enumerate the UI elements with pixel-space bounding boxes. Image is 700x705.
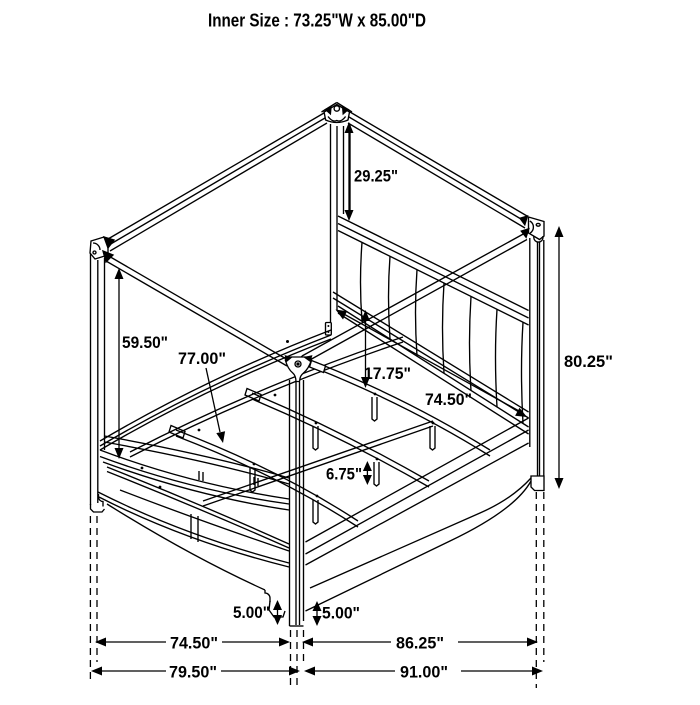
svg-text:Inner Size : 73.25"W x 85.00"D: Inner Size : 73.25"W x 85.00"D bbox=[208, 10, 426, 31]
svg-text:74.50": 74.50" bbox=[170, 635, 218, 653]
svg-text:29.25": 29.25" bbox=[354, 168, 398, 186]
svg-text:6.75": 6.75" bbox=[326, 466, 362, 484]
svg-text:5.00": 5.00" bbox=[233, 604, 270, 622]
svg-text:17.75": 17.75" bbox=[364, 365, 411, 383]
svg-text:79.50": 79.50" bbox=[169, 664, 217, 682]
svg-text:5.00": 5.00" bbox=[322, 605, 360, 623]
svg-text:86.25": 86.25" bbox=[396, 635, 444, 653]
svg-text:74.50": 74.50" bbox=[425, 391, 472, 409]
svg-text:59.50": 59.50" bbox=[122, 334, 168, 352]
svg-text:91.00": 91.00" bbox=[400, 664, 448, 682]
svg-text:80.25": 80.25" bbox=[564, 353, 613, 371]
svg-text:77.00": 77.00" bbox=[178, 350, 226, 368]
